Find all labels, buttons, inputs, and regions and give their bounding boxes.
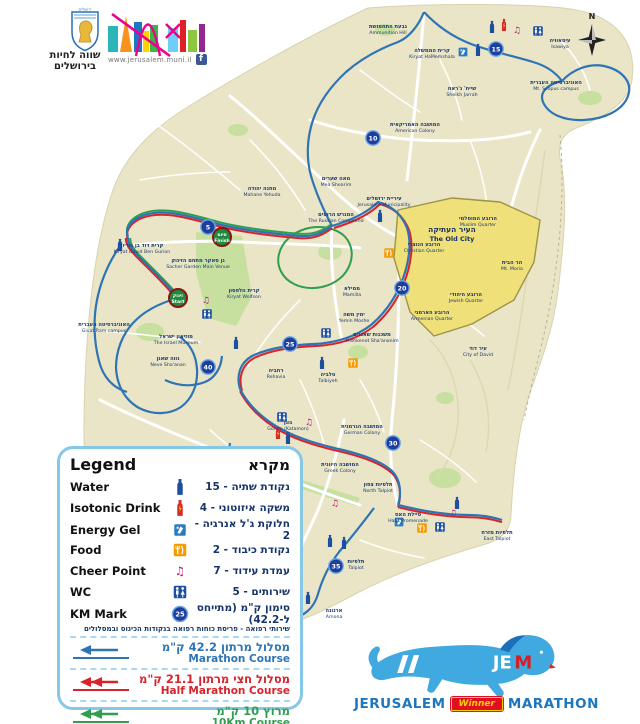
svg-text:15: 15 xyxy=(492,45,501,53)
map-label: מאה שעריםMea Shearim xyxy=(321,176,352,188)
marathon-map-page: העיר העתיקה The Old City N xyxy=(0,0,640,724)
map-label: המושבה היווניתGreek Colony xyxy=(321,462,359,474)
map-label: מחנה יהודהMahane Yehuda xyxy=(243,186,280,198)
tenk-arrow-icon xyxy=(70,708,136,724)
map-label: מוזיאון ישראלThe Israel Museum xyxy=(153,334,199,346)
km-mark-40: 40 xyxy=(201,360,215,374)
legend-item-wc: WC שירותים - 5 xyxy=(70,581,290,602)
svg-text:20: 20 xyxy=(398,284,407,292)
map-label: ממילאMamilla xyxy=(343,286,361,298)
jem-word-marathon: MARATHON xyxy=(508,696,599,712)
wc-icon xyxy=(174,585,187,598)
start-badge: זינוקStart xyxy=(169,289,187,307)
km-icon: 25 xyxy=(172,606,187,621)
svg-text:M: M xyxy=(514,653,532,674)
municipality-url: www.jerusalem.muni.il xyxy=(108,56,192,64)
food-icon xyxy=(169,540,191,560)
legend-title-he: מקרא xyxy=(248,456,290,474)
jerusalem-emblem-icon: ירושלים xyxy=(68,6,102,52)
svg-text:40: 40 xyxy=(204,363,213,371)
km-mark-15: 15 xyxy=(489,42,503,56)
wc-icon xyxy=(321,328,331,338)
km-mark-35: 35 xyxy=(329,559,343,573)
svg-text:סיום: סיום xyxy=(217,233,226,238)
svg-text:35: 35 xyxy=(332,562,341,570)
map-label: הרובע המוסלמיMuslim Quarter xyxy=(459,216,497,228)
winner-sponsor-badge: Winner xyxy=(451,697,503,711)
isotonic-icon xyxy=(169,498,191,518)
municipality-slogan: שווה לחיות בירושלים xyxy=(44,50,106,72)
wc-icon xyxy=(169,582,191,602)
map-label: האוניברסיטה העבריתMt. Scopus campus xyxy=(530,80,582,92)
slogan-line2: בירושלים xyxy=(44,61,106,72)
wc-icon xyxy=(533,26,543,36)
cheer-icon: ♫ xyxy=(331,499,339,509)
map-label: תלפיות צפוןNorth Talpiot xyxy=(363,482,393,494)
legend-item-food: Food נקודת כיבוד - 2 xyxy=(70,539,290,560)
legend-footnote: שירותי רפואה - פריסת כוחות רפואה בנקודות… xyxy=(70,625,290,633)
map-label: הרובע הארמניArmenian Quarter xyxy=(411,310,453,322)
map-label: ארנונהArnona xyxy=(326,608,343,620)
legend-item-isotonic: Isotonic Drink משקה איזוטוני - 4 xyxy=(70,497,290,518)
facebook-icon: f xyxy=(196,54,207,65)
energy-gel-icon xyxy=(169,520,191,540)
map-label: רחביהRehavia xyxy=(267,368,286,380)
cheer-point-icon: ♫ xyxy=(169,561,191,581)
course-marathon: מסלול מרתון 42.2 ק"מ Marathon Course xyxy=(70,639,290,667)
wc-icon xyxy=(435,522,445,532)
svg-text:5: 5 xyxy=(206,223,210,231)
map-label: טלביהTalbiyeh xyxy=(317,372,337,384)
svg-text:25: 25 xyxy=(175,611,185,619)
km-mark-25: 25 xyxy=(283,337,297,351)
map-label: האוניברסיטה העבריתGivat Ram campus xyxy=(78,322,130,334)
map-label: ימין משהYemin Moshe xyxy=(338,312,370,324)
map-label: גבעת התחמושתAmmunition Hill xyxy=(369,24,408,36)
map-label: תלפיות מזרחEast Talpiot xyxy=(481,530,513,542)
svg-text:♫: ♫ xyxy=(513,26,521,36)
jem-logo: JE M JERUSALEM Winner MARATHON xyxy=(342,628,632,712)
city-skyline-logo xyxy=(106,4,210,60)
km-mark-10: 10 xyxy=(366,131,380,145)
slogan-line1: שווה לחיות xyxy=(44,50,106,61)
food-icon xyxy=(384,248,394,258)
svg-text:25: 25 xyxy=(286,340,295,348)
svg-text:JE: JE xyxy=(491,653,512,674)
km-mark-5: 5 xyxy=(201,220,215,234)
km-mark-30: 30 xyxy=(386,436,400,450)
map-label: גן סאקר מתחם הזינוקSacher Garden Main Ve… xyxy=(166,258,230,270)
course-10km: מרוץ 10 ק"מ 10Km Course xyxy=(70,703,290,724)
food-icon xyxy=(348,358,358,368)
legend-item-water: Water נקודת שתיה - 15 xyxy=(70,476,290,497)
compass-north-label: N xyxy=(589,12,596,21)
divider xyxy=(70,636,290,638)
jem-word-jerusalem: JERUSALEM xyxy=(354,696,446,712)
map-label: המושבה הגרמניתGerman Colony xyxy=(341,424,383,436)
map-label: קרית וולפסוןKiryat Wolfson xyxy=(227,288,261,300)
food-icon xyxy=(174,543,187,556)
cheer-icon: ♫ xyxy=(175,564,185,578)
food-icon xyxy=(417,523,427,533)
svg-text:♫: ♫ xyxy=(331,499,339,509)
svg-text:♫: ♫ xyxy=(202,296,210,306)
map-label: הרובע הנוצריChristian Quarter xyxy=(404,242,445,254)
legend-title-en: Legend xyxy=(70,455,136,474)
svg-text:10: 10 xyxy=(369,134,378,142)
km-mark-icon: 25 xyxy=(169,604,191,624)
svg-text:30: 30 xyxy=(389,439,398,447)
divider xyxy=(70,700,290,702)
gel-icon xyxy=(174,524,186,536)
svg-text:Start: Start xyxy=(171,299,185,305)
svg-text:Finish: Finish xyxy=(214,238,230,244)
map-label: קרית דוד בן גוריוןKiryat David Ben Gurio… xyxy=(114,243,171,255)
svg-text:♫: ♫ xyxy=(175,564,185,578)
divider xyxy=(70,668,290,670)
course-half-marathon: מסלול חצי מרתון 21.1 ק"מ Half Marathon C… xyxy=(70,671,290,699)
map-label: שייח' ג'ראחSheikh Jarrah xyxy=(446,86,477,98)
jem-lion-icon: JE M xyxy=(342,628,622,700)
svg-text:זינוק: זינוק xyxy=(173,294,183,299)
legend-box: Legend מקרא Water נקודת שתיה - 15 Isoton… xyxy=(57,446,303,710)
map-label: תלפיותTalpiot xyxy=(347,559,365,571)
gel-icon xyxy=(459,48,468,57)
half-marathon-arrow-icon xyxy=(70,676,136,694)
legend-item-km: KM Mark 25 סימון ק"מ (מתייחס ל-42.2) xyxy=(70,602,290,623)
map-label: המושבה האמריקאיתAmerican Colony xyxy=(390,122,440,134)
legend-item-cheer: Cheer Point ♫ עמדת עידוד - 7 xyxy=(70,560,290,581)
map-label: קרית הממשלהKiryat HaMemshala xyxy=(409,48,455,60)
svg-text:ירושלים: ירושלים xyxy=(79,7,92,12)
isotonic-icon xyxy=(177,500,182,516)
km-mark-20: 20 xyxy=(395,281,409,295)
map-label: הרובע היהודיJewish Quarter xyxy=(448,292,483,304)
water-icon xyxy=(177,479,182,495)
water-icon xyxy=(169,477,191,497)
marathon-arrow-icon xyxy=(70,644,136,662)
wc-icon xyxy=(202,309,212,319)
map-label: הר הביתMt. Moria xyxy=(501,260,523,272)
cheer-icon: ♫ xyxy=(449,509,457,519)
svg-text:♫: ♫ xyxy=(449,509,457,519)
legend-item-gel: Energy Gel חלוקת ג'ל אנרגיה - 2 xyxy=(70,518,290,539)
cheer-icon: ♫ xyxy=(513,26,521,36)
map-label: עיסאוויהIsawiya xyxy=(550,38,571,50)
finish-badge: סיוםFinish xyxy=(213,228,231,246)
cheer-icon: ♫ xyxy=(202,296,210,306)
